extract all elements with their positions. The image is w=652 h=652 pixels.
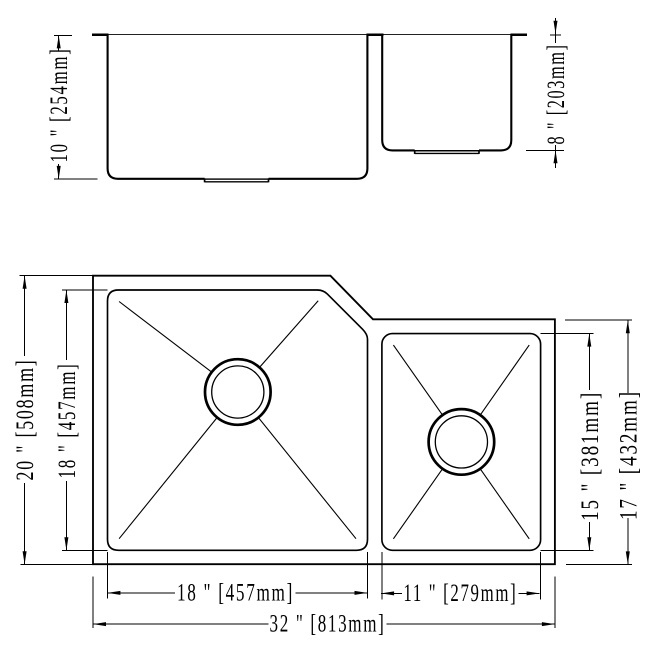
svg-text:11 " [279mm]: 11 " [279mm] <box>403 578 517 607</box>
svg-text:32 " [813mm]: 32 " [813mm] <box>270 609 386 638</box>
svg-text:8 " [203mm]: 8 " [203mm] <box>541 44 570 145</box>
svg-text:20 " [508mm]: 20 " [508mm] <box>10 359 39 481</box>
svg-text:15 " [381mm]: 15 " [381mm] <box>575 391 604 521</box>
svg-text:18 " [457mm]: 18 " [457mm] <box>177 577 294 606</box>
svg-text:17 " [432mm]: 17 " [432mm] <box>613 390 642 520</box>
svg-text:18 " [457mm]: 18 " [457mm] <box>52 363 81 479</box>
svg-text:10 " [254mm]: 10 " [254mm] <box>44 48 73 163</box>
